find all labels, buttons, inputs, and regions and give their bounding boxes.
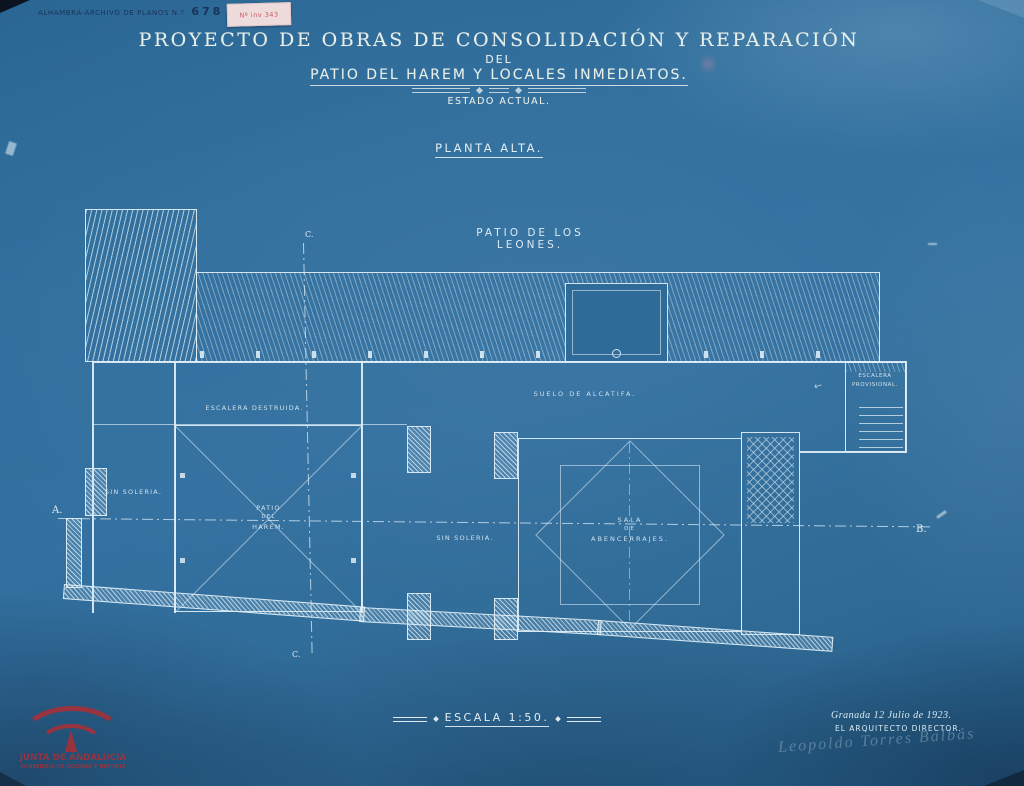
sin-soleria-mid-label: SIN SOLERIA. <box>420 533 510 543</box>
pavilion-inner-wall <box>572 290 661 355</box>
stair-room: ESCALERA PROVISIONAL. <box>845 362 906 452</box>
section-marker-c-bottom: C. <box>292 650 300 659</box>
stair-arrow-icon: ← <box>813 380 824 393</box>
section-marker-c-top: C. <box>305 230 313 239</box>
wall-pier <box>407 426 431 473</box>
sala-abencerrajes-label: SALA DE ABENCERRAJES. <box>518 515 742 545</box>
pavilion-fountain <box>612 349 621 358</box>
central-pavilion <box>565 283 668 362</box>
logo-subtext: CONSEJERÍA DE CULTURA Y DEPORTE <box>14 765 132 770</box>
escalera-provisional-label: ESCALERA PROVISIONAL. <box>846 372 904 391</box>
logo-text: JUNTA DE ANDALUCIA <box>14 753 132 763</box>
wall-line <box>92 361 906 363</box>
west-wall-stub <box>66 518 82 588</box>
escalera-destruida-label: ESCALERA DESTRUIDA. <box>182 403 327 413</box>
floor-plan: PATIO DEL HAREM. SIN SOLERIA. ESCALERA D… <box>0 0 1024 786</box>
east-strip-crosshatch <box>747 437 794 523</box>
scale-label: ESCALA 1:50. <box>445 711 550 727</box>
sin-soleria-left-label: SIN SOLERIA. <box>92 487 175 497</box>
junta-andalucia-logo: JUNTA DE ANDALUCIA CONSEJERÍA DE CULTURA… <box>14 700 140 778</box>
patio-pillar <box>180 473 185 478</box>
patio-pillar <box>180 558 185 563</box>
scale-flourish <box>393 717 427 722</box>
suelo-alcatifa-label: SUELO DE ALCATIFA. <box>515 389 655 399</box>
scale-diamond <box>556 716 562 722</box>
patio-pillar <box>351 473 356 478</box>
logo-figure-icon <box>65 730 77 752</box>
patio-harem-label: PATIO DEL HAREM. <box>175 503 362 533</box>
wall-pier <box>494 432 518 479</box>
scale-flourish <box>567 717 601 722</box>
scale-diamond <box>433 716 439 722</box>
patio-pillar <box>351 558 356 563</box>
stair-room-hatch <box>846 363 905 372</box>
section-marker-b: B. <box>916 524 927 535</box>
section-marker-a: A. <box>52 505 62 516</box>
gallery-roof-band <box>196 272 880 362</box>
northwest-hatched-block <box>85 209 197 362</box>
date-line: Granada 12 Julio de 1923. <box>831 710 991 721</box>
colonnade-ticks <box>200 351 848 358</box>
